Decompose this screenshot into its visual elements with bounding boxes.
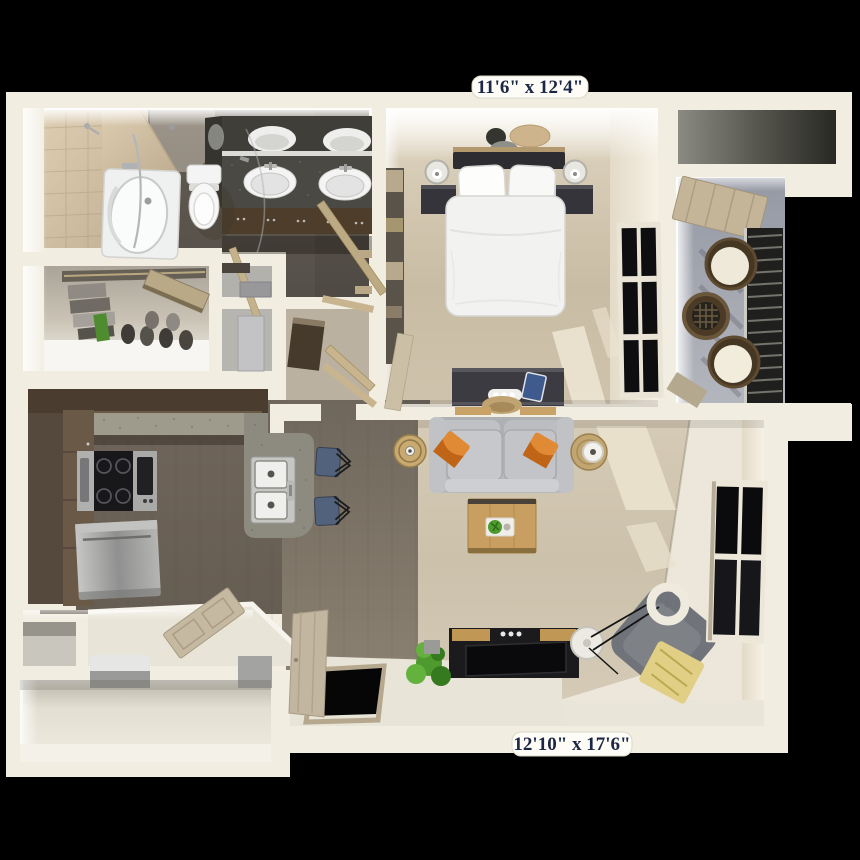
- svg-text:12'10" x 17'6": 12'10" x 17'6": [513, 734, 630, 755]
- svg-text:11'6" x 12'4": 11'6" x 12'4": [477, 77, 584, 98]
